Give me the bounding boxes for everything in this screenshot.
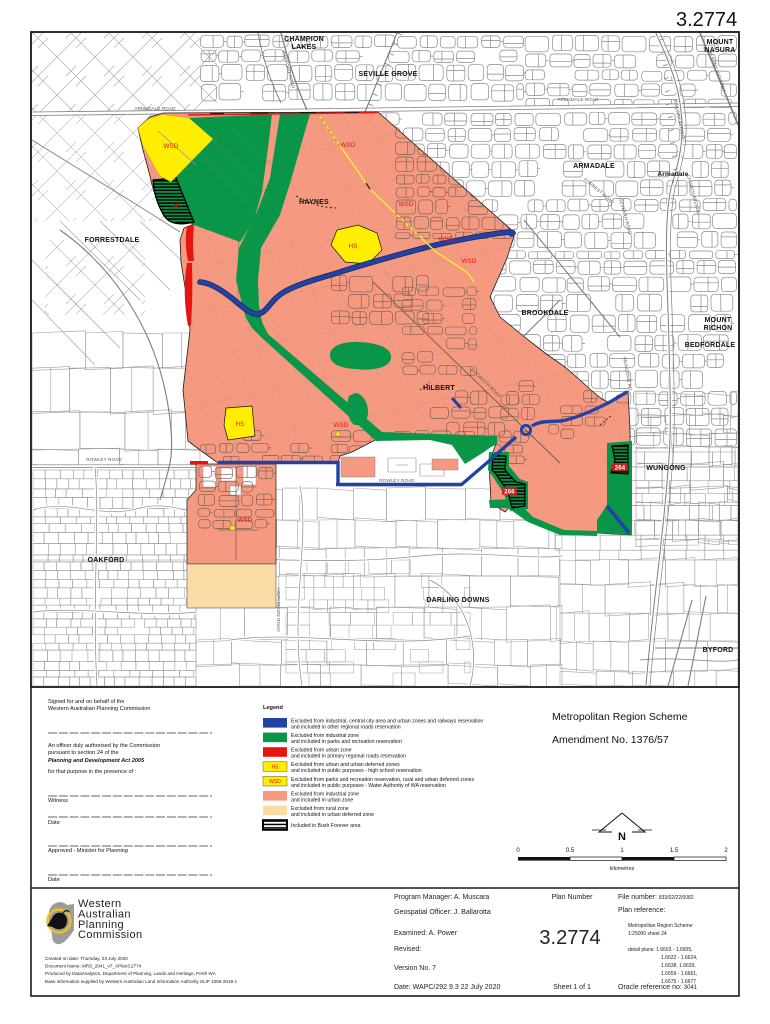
svg-text:and included in parks and recr: and included in parks and recreation res… <box>291 739 402 745</box>
svg-text:Signed for and on behalf of th: Signed for and on behalf of the <box>48 699 125 705</box>
svg-text:MOUNT: MOUNT <box>707 39 734 46</box>
svg-text:ARMADALE: ARMADALE <box>573 163 615 170</box>
svg-text:WSD: WSD <box>334 422 349 429</box>
svg-text:3.2774: 3.2774 <box>539 927 600 949</box>
svg-text:Plan Number: Plan Number <box>552 894 594 901</box>
svg-text:ROWLEY ROAD: ROWLEY ROAD <box>379 478 415 483</box>
svg-text:HAYNES: HAYNES <box>299 199 329 206</box>
svg-text:Examined: A. Power: Examined: A. Power <box>394 930 458 937</box>
svg-text:Created on date: Thursday, 23: Created on date: Thursday, 23 July 2020 <box>45 956 128 961</box>
svg-text:N: N <box>618 831 626 843</box>
svg-text:MOUNT: MOUNT <box>705 317 732 324</box>
svg-text:Oracle reference no: 3041: Oracle reference no: 3041 <box>618 984 698 991</box>
svg-text:○: ○ <box>671 179 674 185</box>
svg-text:Included in Bush Forever area: Included in Bush Forever area <box>291 823 361 829</box>
svg-text:1.5: 1.5 <box>670 848 679 854</box>
svg-text:HS: HS <box>236 421 245 428</box>
svg-text:3.2774: 3.2774 <box>676 9 737 31</box>
svg-text:pursuant to section 24 of the: pursuant to section 24 of the <box>48 750 119 756</box>
svg-text:FORRESTDALE: FORRESTDALE <box>85 237 140 244</box>
svg-text:1.6659 - 1.6661,: 1.6659 - 1.6661, <box>661 971 697 977</box>
svg-text:ROWLEY ROAD: ROWLEY ROAD <box>86 457 122 462</box>
svg-text:Date: WAPC/292.9.3 22 July: Date: WAPC/292.9.3 22 July 2020 <box>394 984 500 991</box>
svg-text:Date: Date <box>48 877 60 883</box>
svg-text:Approved - Minister for Planni: Approved - Minister for Planning <box>48 848 128 854</box>
svg-text:HILBERT: HILBERT <box>423 385 455 392</box>
svg-text:Revised:: Revised: <box>394 946 421 953</box>
svg-text:HOPKINSON ROAD: HOPKINSON ROAD <box>276 588 281 632</box>
svg-text:and included in public purpose: and included in public purposes - high s… <box>291 768 422 774</box>
svg-text:BROOKDALE: BROOKDALE <box>522 310 569 317</box>
svg-text:WSD: WSD <box>439 236 454 243</box>
svg-text:WSD: WSD <box>164 143 179 150</box>
svg-text:CHAMPION: CHAMPION <box>284 36 324 43</box>
svg-text:for that purpose in the presen: for that purpose in the presence of : <box>48 769 137 775</box>
svg-text:WSD: WSD <box>269 779 281 785</box>
svg-text:264: 264 <box>615 466 626 472</box>
svg-text:and included in other regional: and included in other regional roads res… <box>291 724 401 730</box>
svg-text:Commission: Commission <box>78 929 143 941</box>
svg-text:LAKES: LAKES <box>292 44 317 51</box>
svg-text:Metropolitan Region Scheme: Metropolitan Region Scheme <box>628 923 693 929</box>
svg-text:Plan reference:: Plan reference: <box>618 907 666 914</box>
svg-text:Legend: Legend <box>263 705 283 711</box>
svg-text:and included in primary region: and included in primary regional roads r… <box>291 754 406 760</box>
svg-text:OAKFORD: OAKFORD <box>88 557 125 564</box>
svg-text:266: 266 <box>504 490 515 496</box>
svg-text:and included in urban deferred: and included in urban deferred zone <box>291 812 374 818</box>
svg-text:Date: Date <box>48 820 60 826</box>
svg-text:WSD: WSD <box>341 142 356 149</box>
svg-text:ARMADALE ROAD: ARMADALE ROAD <box>557 97 599 102</box>
svg-text:Sheet 1 of 1: Sheet 1 of 1 <box>553 984 591 991</box>
svg-text:WSD: WSD <box>462 258 477 265</box>
svg-text:RICHON: RICHON <box>704 325 733 332</box>
svg-text:Armadale: Armadale <box>657 171 688 178</box>
svg-text:WSD: WSD <box>238 517 253 524</box>
svg-text:DARLING DOWNS: DARLING DOWNS <box>426 597 489 604</box>
svg-text:Version No. 7: Version No. 7 <box>394 965 436 972</box>
svg-text:845: 845 <box>171 203 182 210</box>
svg-text:HS: HS <box>349 243 358 250</box>
svg-text:HS: HS <box>272 765 280 771</box>
svg-text:Base information supplied by W: Base information supplied by Western Aus… <box>45 979 238 984</box>
svg-text:Western Australian Planning Co: Western Australian Planning Commission <box>48 706 151 712</box>
svg-text:Planning and Development Act 2: Planning and Development Act 2005 <box>48 758 145 764</box>
svg-text:1:25000 sheet 24: 1:25000 sheet 24 <box>628 931 667 937</box>
svg-text:Document Name: MRS_2041_v7_APl: Document Name: MRS_2041_v7_APlan3.2774 <box>45 964 142 969</box>
svg-text:Metropolitan Region Scheme: Metropolitan Region Scheme <box>552 711 688 723</box>
svg-text:ARMADALE ROAD: ARMADALE ROAD <box>134 106 176 111</box>
svg-text:Witness: Witness <box>48 798 68 804</box>
svg-text:1.6638, 1.6639,: 1.6638, 1.6639, <box>661 963 696 969</box>
svg-text:WUNGONG: WUNGONG <box>646 465 686 472</box>
svg-text:An officer duly authorised by: An officer duly authorised by the Commis… <box>48 743 160 749</box>
svg-text:WSD: WSD <box>399 201 414 208</box>
svg-text:0.5: 0.5 <box>566 848 575 854</box>
svg-text:SEVILLE GROVE: SEVILLE GROVE <box>359 71 418 78</box>
svg-text:kilometres: kilometres <box>610 866 635 872</box>
svg-text:File number: 833/02/22/0082: File number: 833/02/22/0082 <box>618 894 694 901</box>
svg-text:Produced by DataAnalytics, Dep: Produced by DataAnalytics, Department of… <box>45 971 217 976</box>
svg-text:detail plans: 1.6603 - 1.6605: detail plans: 1.6603 - 1.6605, <box>628 947 693 953</box>
svg-text:Geospatial Officer: J. Ballaro: Geospatial Officer: J. Ballarotta <box>394 909 491 916</box>
svg-text:BEDFORDALE: BEDFORDALE <box>685 342 736 349</box>
svg-text:1.6622 - 1.6624,: 1.6622 - 1.6624, <box>661 955 697 961</box>
svg-text:BYFORD: BYFORD <box>703 647 734 654</box>
svg-text:Program Manager: A. Muscara: Program Manager: A. Muscara <box>394 894 489 901</box>
svg-text:and included in urban zone: and included in urban zone <box>291 797 353 803</box>
svg-text:Amendment No. 1376/57: Amendment No. 1376/57 <box>552 734 669 746</box>
svg-text:and included in public purpose: and included in public purposes - Water … <box>291 783 446 789</box>
